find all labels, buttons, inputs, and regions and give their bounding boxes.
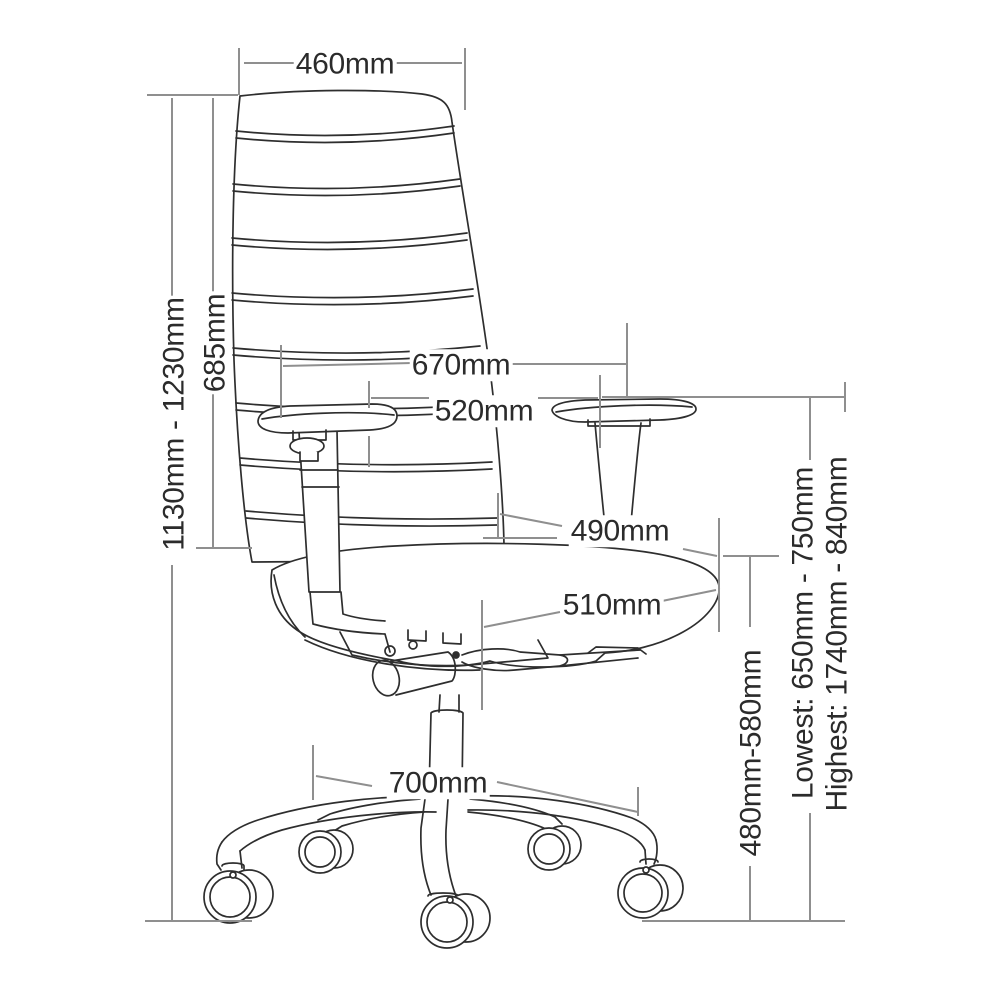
chair-backrest: [232, 90, 504, 562]
base-diameter-label: 700mm: [387, 767, 490, 799]
seat-depth-label: 490mm: [569, 515, 672, 547]
seat-height-range-label: 480mm-580mm: [735, 648, 767, 859]
seat-width-label: 520mm: [433, 395, 536, 427]
overall-height-label: 1130mm - 1230mm: [158, 295, 190, 552]
overall-width-label: 670mm: [410, 349, 513, 381]
seat-front-width-label: 510mm: [561, 589, 664, 621]
armrest-lowest-label: Lowest: 650mm - 750mm: [787, 465, 819, 801]
back-width-label: 460mm: [294, 48, 397, 80]
chair-casters: [204, 826, 683, 948]
chair-base: [217, 796, 658, 902]
back-height-label: 685mm: [199, 292, 231, 395]
dimension-diagram: 460mm 685mm 1130mm - 1230mm 670mm 520mm …: [0, 0, 1000, 1000]
armrest-highest-label: Highest: 1740mm - 840mm: [821, 455, 853, 814]
